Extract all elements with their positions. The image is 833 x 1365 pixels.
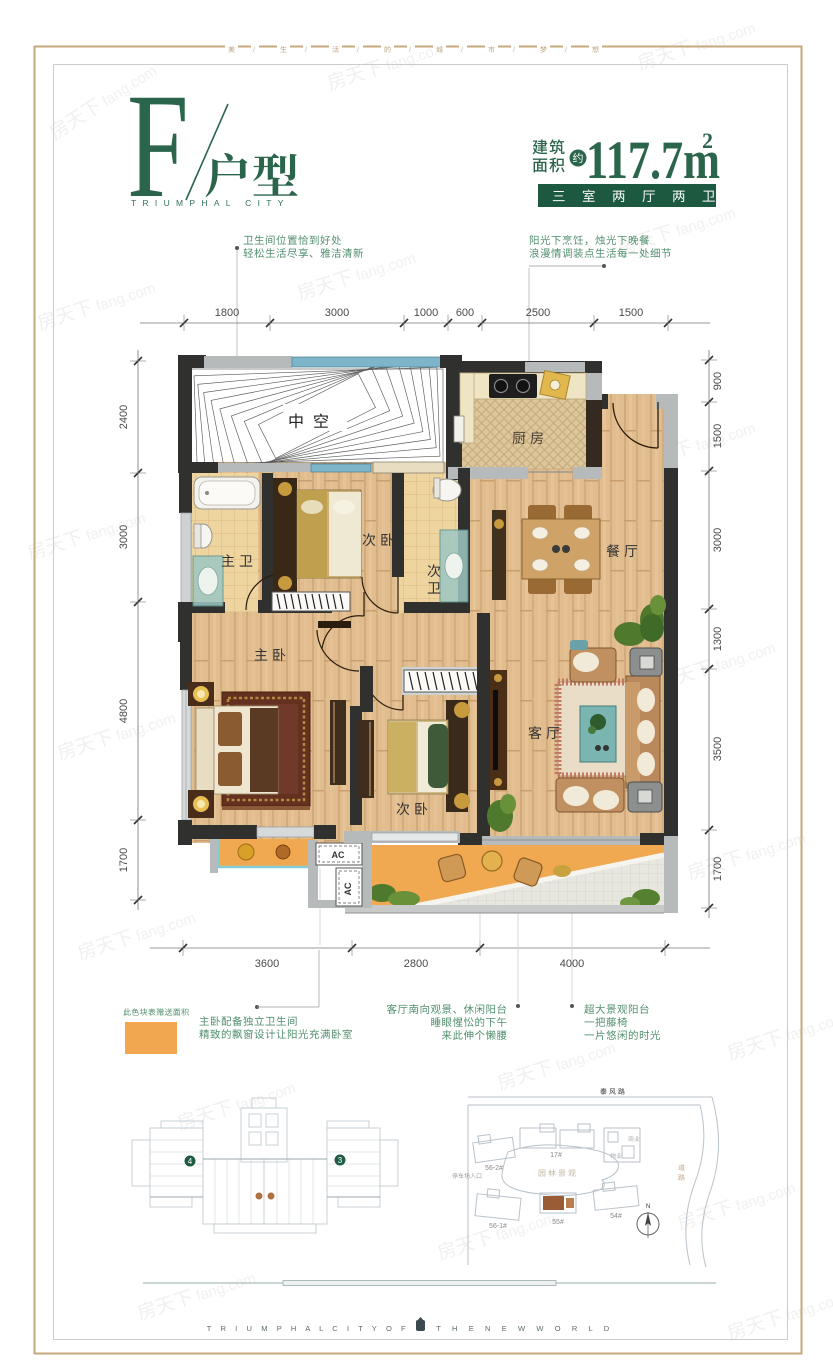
svg-text:AC: AC [343, 882, 353, 895]
svg-text:/: / [409, 47, 411, 54]
svg-text:55#: 55# [552, 1219, 564, 1226]
svg-text:/: / [565, 47, 567, 54]
svg-text:900: 900 [712, 372, 724, 390]
svg-text:2500: 2500 [526, 307, 550, 319]
svg-text:3000: 3000 [712, 528, 724, 552]
svg-text:TRIUMPHAL CITY: TRIUMPHAL CITY [131, 198, 290, 208]
svg-text:1000: 1000 [414, 307, 438, 319]
svg-text:N: N [646, 1204, 650, 1210]
svg-text:AC: AC [332, 850, 345, 860]
svg-text:56-2#: 56-2# [485, 1165, 503, 1172]
svg-text:3500: 3500 [712, 737, 724, 761]
svg-text:3: 3 [338, 1156, 343, 1165]
svg-text:/: / [513, 47, 515, 54]
svg-text:2: 2 [702, 128, 713, 153]
svg-text:1800: 1800 [215, 307, 239, 319]
svg-text:1500: 1500 [712, 424, 724, 448]
svg-text:/: / [357, 47, 359, 54]
svg-text:4: 4 [188, 1157, 193, 1166]
svg-text:117.7m: 117.7m [586, 130, 720, 190]
svg-text:54#: 54# [610, 1213, 622, 1220]
svg-text:1500: 1500 [619, 307, 643, 319]
svg-text:17#: 17# [550, 1152, 562, 1159]
svg-text:56-1#: 56-1# [489, 1223, 507, 1230]
svg-text:T R I U M P H A L C I T Y: T R I U M P H A L C I T Y O F [207, 1324, 410, 1333]
svg-text:1700: 1700 [118, 848, 130, 872]
svg-text:/: / [253, 47, 255, 54]
svg-text:600: 600 [456, 307, 474, 319]
svg-text:4800: 4800 [118, 699, 130, 723]
svg-text:/: / [305, 47, 307, 54]
svg-text:/: / [461, 47, 463, 54]
svg-text:3000: 3000 [118, 525, 130, 549]
svg-text:1700: 1700 [712, 857, 724, 881]
svg-text:T H E N E W W O R L D: T H E N E W W O R L D [436, 1324, 613, 1333]
svg-text:1300: 1300 [712, 627, 724, 651]
svg-text:2800: 2800 [404, 958, 428, 970]
svg-text:2400: 2400 [118, 405, 130, 429]
svg-text:3000: 3000 [325, 307, 349, 319]
svg-text:3600: 3600 [255, 958, 279, 970]
